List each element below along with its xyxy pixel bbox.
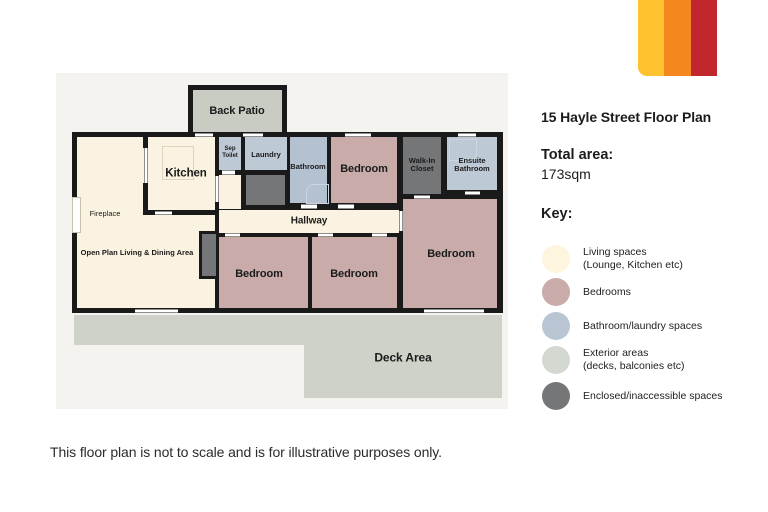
door-gap xyxy=(215,176,219,202)
enclosed-space-top xyxy=(246,175,285,205)
door-gap xyxy=(195,133,213,137)
legend-swatch-enclosed xyxy=(542,382,570,410)
total-area-value: 173sqm xyxy=(541,166,591,182)
legend-swatch-bathroom xyxy=(542,312,570,340)
door-gap xyxy=(225,233,240,237)
window-gap xyxy=(458,133,476,137)
label-bedroom-right: Bedroom xyxy=(427,248,475,260)
window-gap xyxy=(424,309,484,313)
door-gap xyxy=(301,204,317,209)
window-gap xyxy=(135,309,178,313)
legend-row-exterior: Exterior areas (decks, balconies etc) xyxy=(542,346,685,374)
legend-row-bedrooms: Bedrooms xyxy=(542,278,631,306)
door-gap xyxy=(372,233,387,237)
legend-label-bedrooms: Bedrooms xyxy=(583,286,631,299)
total-area-label: Total area: xyxy=(541,147,613,163)
window-gap xyxy=(345,133,371,137)
label-laundry: Laundry xyxy=(251,151,281,159)
kitchen-wall-left-upper xyxy=(143,135,148,148)
label-bedroom-middle: Bedroom xyxy=(330,268,378,280)
legend-label-living: Living spaces (Lounge, Kitchen etc) xyxy=(583,246,683,272)
label-living: Open Plan Living & Dining Area xyxy=(81,249,194,257)
label-walk-in-closet: Walk-In Closet xyxy=(409,157,435,174)
logo-stripe-red xyxy=(691,0,717,76)
label-ensuite-bathroom: Ensuite Bathroom xyxy=(454,157,489,174)
kitchen-wall-left-lower xyxy=(143,183,148,214)
floor-plan-page: Back Patio Kitchen Sep Toilet Laundry Ba… xyxy=(0,0,768,512)
legend-swatch-exterior xyxy=(542,346,570,374)
label-fireplace: Fireplace xyxy=(90,210,121,218)
legend-label-exterior: Exterior areas (decks, balconies etc) xyxy=(583,347,685,373)
door-gap xyxy=(414,195,430,199)
door-gap xyxy=(222,170,235,175)
label-bedroom-left: Bedroom xyxy=(235,268,283,280)
page-title: 15 Hayle Street Floor Plan xyxy=(541,109,711,125)
disclaimer-text: This floor plan is not to scale and is f… xyxy=(50,444,442,460)
legend-row-enclosed: Enclosed/inaccessible spaces xyxy=(542,382,723,410)
label-back-patio: Back Patio xyxy=(209,105,264,117)
door-gap xyxy=(338,204,354,209)
label-bathroom: Bathroom xyxy=(290,163,325,171)
brand-logo xyxy=(638,0,717,76)
legend-label-bathroom: Bathroom/laundry spaces xyxy=(583,320,702,333)
door-gap xyxy=(318,233,333,237)
legend-swatch-bedrooms xyxy=(542,278,570,306)
door-gap xyxy=(465,191,480,195)
logo-stripe-orange xyxy=(664,0,690,76)
door-gap xyxy=(144,148,148,183)
legend-row-living: Living spaces (Lounge, Kitchen etc) xyxy=(542,245,683,273)
legend-swatch-living xyxy=(542,245,570,273)
deck-area-strip xyxy=(74,315,502,345)
legend-row-bathroom: Bathroom/laundry spaces xyxy=(542,312,702,340)
legend-label-enclosed: Enclosed/inaccessible spaces xyxy=(583,390,723,403)
label-hallway: Hallway xyxy=(291,216,328,227)
door-gap xyxy=(399,211,403,231)
enclosed-space-living xyxy=(202,234,216,276)
label-kitchen: Kitchen xyxy=(165,168,206,181)
door-gap xyxy=(243,133,263,137)
door-gap xyxy=(155,211,172,215)
key-heading: Key: xyxy=(541,206,572,222)
label-sep-toilet: Sep Toilet xyxy=(222,146,238,160)
label-deck-area: Deck Area xyxy=(374,351,431,364)
label-bedroom-top: Bedroom xyxy=(340,163,388,175)
bathroom-shower xyxy=(306,184,329,204)
hall-entry-area xyxy=(219,175,241,209)
fireplace-fixture xyxy=(72,197,81,233)
logo-stripe-yellow xyxy=(638,0,664,76)
